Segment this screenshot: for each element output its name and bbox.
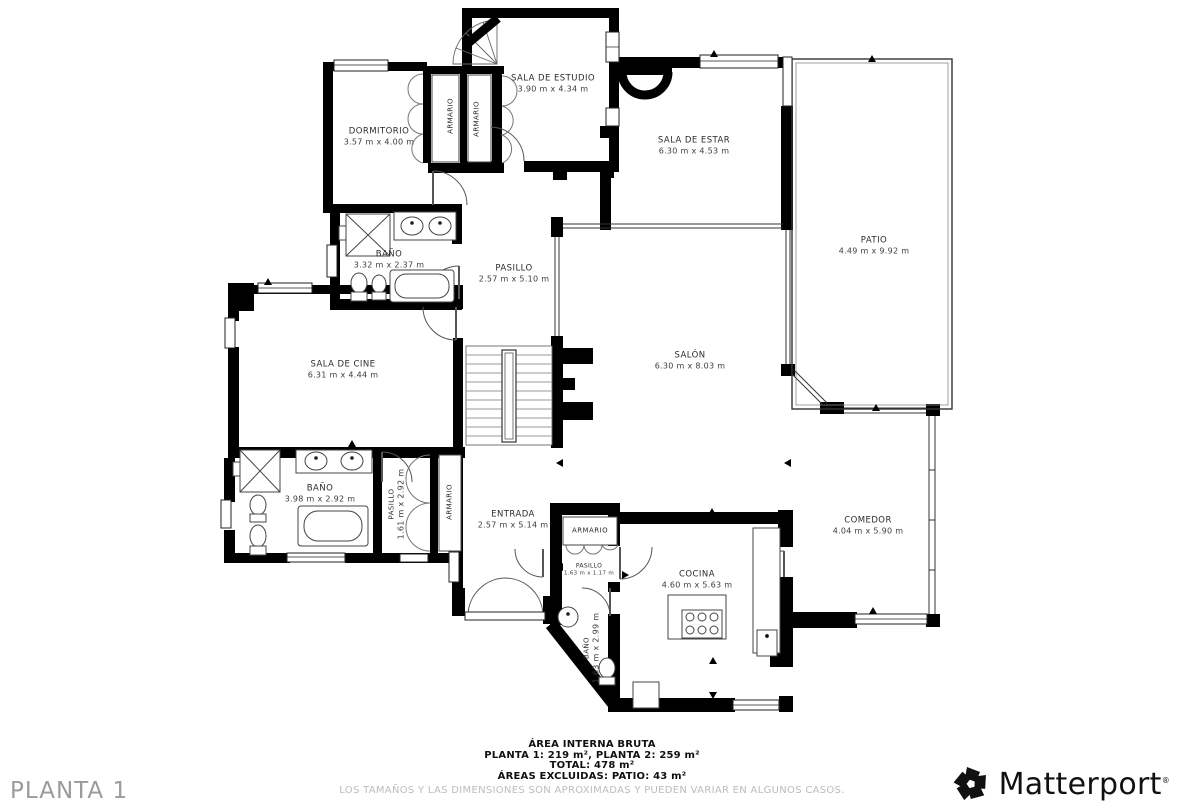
toilet-upper: [351, 273, 367, 301]
matterport-logo: Matterport®: [951, 764, 1170, 804]
shower-upper: [339, 214, 390, 256]
floor-label: PLANTA 1: [10, 778, 128, 804]
fireplace-arch: [622, 72, 668, 95]
glass-partitions: [555, 224, 935, 614]
closet-box: [432, 75, 459, 162]
matterport-wordmark: Matterport®: [999, 767, 1170, 802]
toilet-lower: [250, 525, 266, 555]
area-title: ÁREA INTERNA BRUTA: [0, 740, 1184, 751]
sink: [341, 452, 363, 470]
window-mullions: [258, 47, 927, 705]
sink-round: [558, 607, 578, 627]
sink: [429, 217, 451, 235]
floorplan-drawing: [0, 0, 1184, 812]
closet-box: [439, 455, 461, 551]
floorplan-page: SALA DE ESTUDIO3.90 m x 4.34 m DORMITORI…: [0, 0, 1184, 812]
spiral-staircase: [453, 15, 501, 64]
matterport-pinwheel-icon: [951, 764, 991, 804]
closet-box: [468, 75, 491, 162]
sink: [401, 217, 423, 235]
kitchen-table: [633, 682, 659, 708]
closet-box: [563, 517, 617, 545]
shower-lower: [233, 450, 280, 492]
patio-outline: [792, 59, 952, 409]
bidet-upper: [372, 275, 386, 300]
sink: [305, 452, 327, 470]
walls: [224, 8, 940, 712]
toilet-kitchen-bath: [599, 658, 615, 685]
bidet-lower: [250, 495, 266, 522]
main-staircase: [466, 346, 552, 445]
